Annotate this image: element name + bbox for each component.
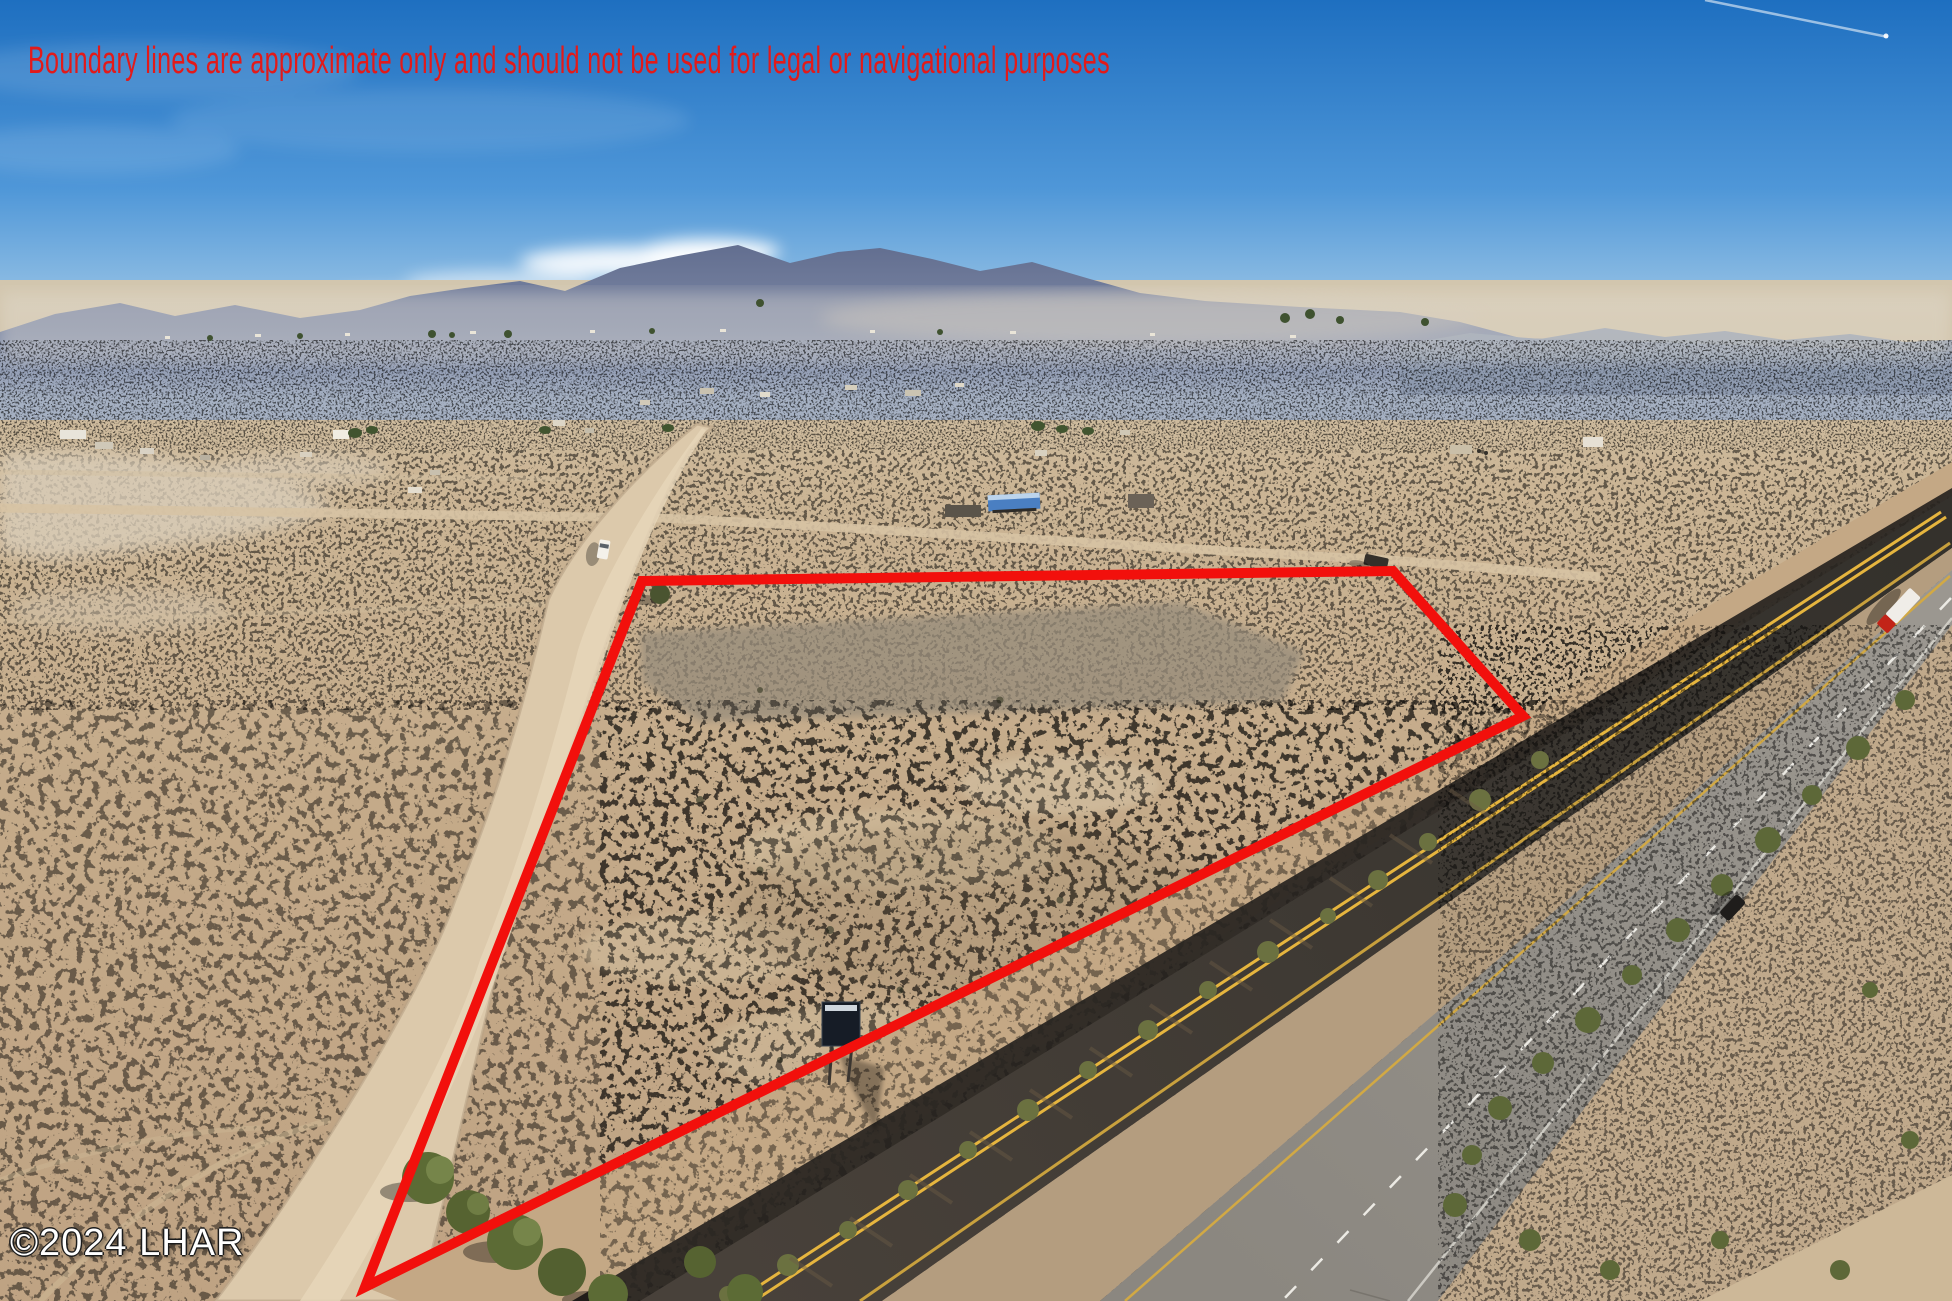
- dark-container: [945, 505, 981, 517]
- aerial-photo: Boundary lines are approximate only and …: [0, 0, 1952, 1301]
- dust-haze: [820, 292, 1480, 344]
- disclaimer-text: Boundary lines are approximate only and …: [28, 40, 1110, 83]
- photo-scene: [0, 0, 1952, 1301]
- blue-canopy-building: [988, 493, 1041, 514]
- scrub-texture-far: [0, 340, 1952, 450]
- watermark-text: ©2024 LHAR: [10, 1222, 244, 1265]
- dark-shed: [1128, 494, 1154, 508]
